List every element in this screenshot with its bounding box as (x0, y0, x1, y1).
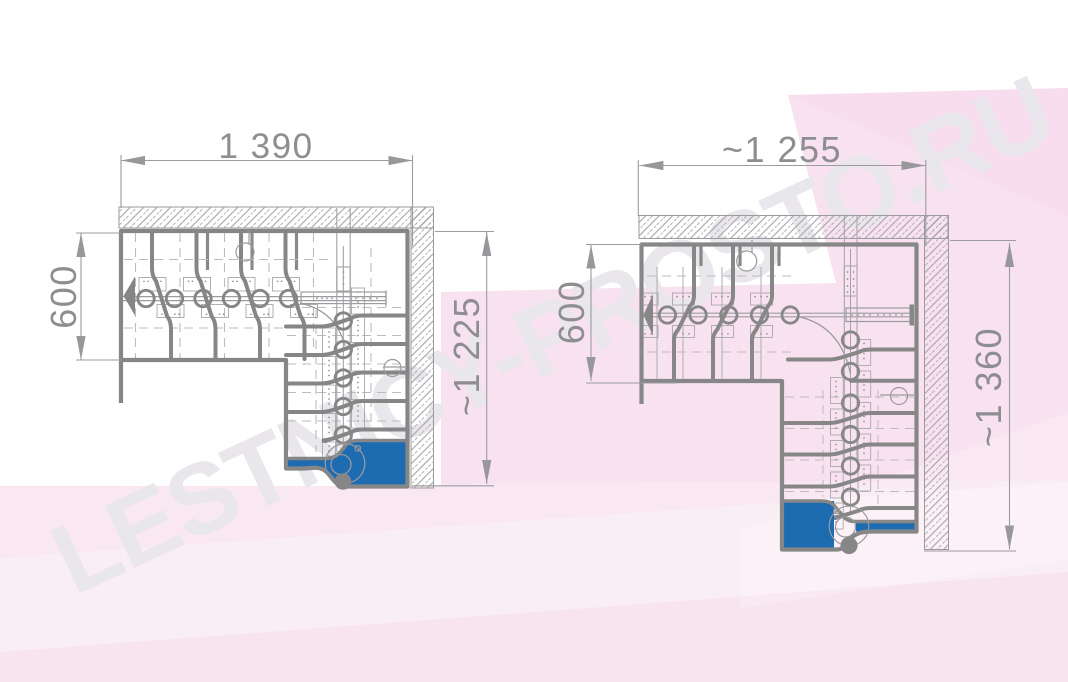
svg-text:~1 225: ~1 225 (446, 296, 487, 416)
svg-text:1 390: 1 390 (218, 127, 313, 166)
svg-text:600: 600 (551, 280, 592, 345)
svg-text:~1 255: ~1 255 (722, 129, 842, 170)
svg-text:600: 600 (43, 264, 84, 329)
svg-text:~1 360: ~1 360 (968, 327, 1009, 447)
